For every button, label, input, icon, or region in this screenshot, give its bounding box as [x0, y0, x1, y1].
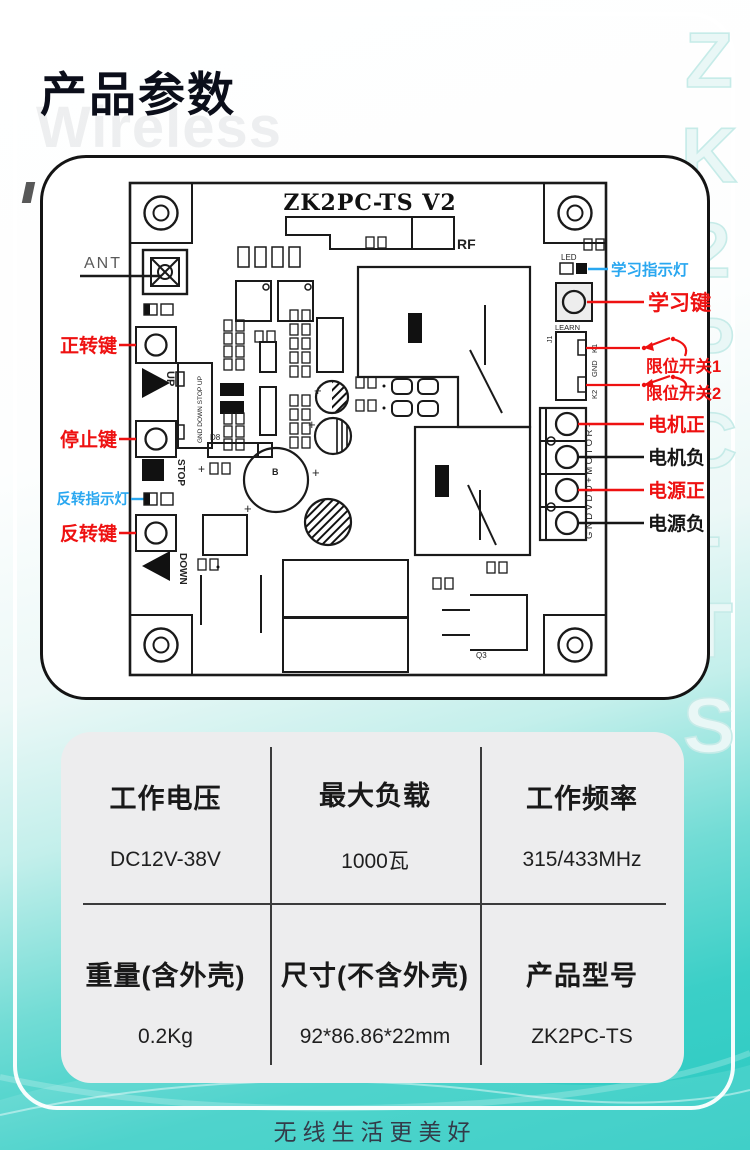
spec-cell-weight: 重量(含外壳) 0.2Kg: [61, 904, 270, 1083]
limit-switch-symbol-1: [586, 337, 686, 356]
pcb-diagram-card: ZK2PC-TS V2 RF ANT: [40, 155, 710, 700]
component-block-2: [283, 618, 408, 672]
svg-text:+: +: [308, 417, 316, 432]
smd-pads-bottom-left: [198, 559, 261, 633]
capacitor-1: +: [314, 381, 348, 413]
callout-limit-switch-1: 限位开关1: [646, 356, 721, 376]
ic-small: [260, 342, 276, 372]
ic-tall: [260, 387, 276, 435]
terminal-block: [540, 408, 586, 540]
stop-button: [136, 421, 176, 457]
mounting-hole-bottom-left: [130, 615, 192, 675]
mounting-hole-top-left: [130, 183, 192, 243]
rf-module: [286, 217, 454, 249]
spec-value: 92*86.86*22mm: [300, 1025, 451, 1049]
callout-motor-negative: 电机负: [648, 446, 705, 469]
spec-table: 工作电压 DC12V-38V 最大负载 1000瓦 工作频率 315/433MH…: [61, 732, 684, 1083]
callout-power-negative: 电源负: [648, 512, 705, 535]
q3-label: Q3: [476, 651, 487, 660]
rf-label: RF: [457, 236, 476, 252]
up-label: UP: [164, 371, 176, 386]
spec-name: 最大负载: [319, 774, 431, 813]
spec-cell-model: 产品型号 ZK2PC-TS: [480, 904, 684, 1083]
learn-led: [560, 263, 587, 274]
ic-u4: [236, 281, 271, 321]
stop-square-icon: [142, 459, 164, 481]
table-divider-vertical-1: [270, 747, 272, 1065]
page-title: 产品参数: [40, 56, 236, 125]
forward-button: [136, 327, 176, 363]
callout-forward-key: 正转键: [60, 334, 117, 357]
reverse-button: [136, 515, 176, 551]
ic-u5: [278, 281, 313, 321]
plus-mark: +: [198, 462, 205, 476]
spec-value: 1000瓦: [341, 845, 409, 875]
spec-name: 重量(含外壳): [86, 954, 246, 993]
svg-text:+: +: [244, 501, 252, 516]
led-label: LED: [561, 253, 577, 262]
component-rect: [317, 318, 343, 372]
table-divider-vertical-2: [480, 747, 482, 1065]
table-divider-horizontal: [83, 903, 666, 905]
spec-name: 工作频率: [526, 777, 638, 816]
antenna-pad: [143, 250, 187, 315]
board-title: ZK2PC-TS V2: [283, 190, 456, 216]
learn-button: [556, 283, 592, 321]
spec-name: 产品型号: [526, 954, 638, 993]
spec-value: DC12V-38V: [110, 848, 221, 872]
svg-text:B: B: [272, 467, 279, 477]
d8-label: D8: [210, 433, 221, 442]
callout-motor-positive: 电机正: [648, 413, 705, 436]
relay-1: [358, 267, 530, 427]
reverse-indicator-led: [144, 493, 173, 505]
j1-connector: [556, 332, 586, 400]
k2-label: K2: [590, 390, 599, 399]
capacitor-2: +: [308, 417, 351, 454]
callout-learn-indicator: 学习指示灯: [611, 260, 689, 279]
svg-text:+: +: [314, 383, 322, 398]
component-q3: [433, 562, 527, 650]
pcb-diagram: ZK2PC-TS V2 RF ANT: [40, 155, 750, 700]
spec-value: 0.2Kg: [138, 1025, 193, 1049]
spec-cell-voltage: 工作电压 DC12V-38V: [61, 732, 270, 904]
callout-stop-key: 停止键: [60, 428, 117, 451]
spec-name: 工作电压: [110, 777, 222, 816]
stop-label: STOP: [175, 459, 186, 486]
capacitor-large-b: B + +: [244, 448, 320, 516]
terminal-pins-label: GNDVDD+MOTOR-: [584, 421, 595, 539]
spec-value: ZK2PC-TS: [531, 1025, 633, 1049]
component-block-1: [283, 560, 408, 617]
down-label: DOWN: [177, 553, 188, 585]
spec-cell-frequency: 工作频率 315/433MHz: [480, 732, 684, 904]
relay-pads: [383, 379, 439, 416]
spec-value: 315/433MHz: [522, 848, 641, 872]
learn-button-label: LEARN: [555, 323, 580, 332]
callout-reverse-key: 反转键: [60, 522, 117, 545]
callout-limit-switch-2: 限位开关2: [646, 383, 721, 403]
svg-text:+: +: [312, 465, 320, 480]
spec-name: 尺寸(不含外壳): [281, 954, 469, 993]
spec-cell-size: 尺寸(不含外壳) 92*86.86*22mm: [270, 904, 480, 1083]
relay-2: [415, 427, 530, 555]
callout-reverse-indicator: 反转指示灯: [57, 490, 130, 508]
footer-slogan: 无线生活更美好: [0, 1113, 750, 1147]
callout-learn-key: 学习键: [648, 291, 711, 315]
ant-label: ANT: [84, 255, 122, 272]
gnd-label: GND: [590, 360, 599, 377]
mounting-hole-bottom-right: [544, 615, 606, 675]
capacitor-3: [305, 499, 351, 545]
down-arrow-icon: [142, 551, 170, 581]
pin-header-labels: GND DOWN STOP UP: [197, 376, 204, 443]
mounting-hole-top-right: [544, 183, 606, 243]
component-square: [203, 515, 247, 555]
spec-cell-load: 最大负载 1000瓦: [270, 732, 480, 904]
callout-power-positive: 电源正: [648, 479, 705, 502]
j1-label: J1: [547, 336, 554, 344]
